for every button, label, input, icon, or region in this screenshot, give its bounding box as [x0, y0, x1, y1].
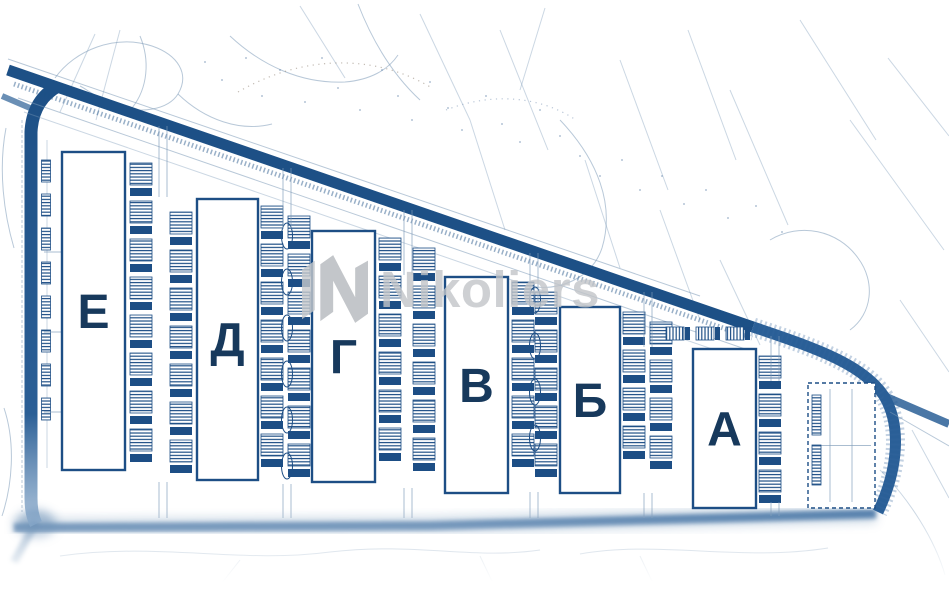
- building-e: Е: [62, 152, 125, 470]
- building-label-b: Б: [573, 375, 608, 428]
- building-g: Г: [312, 231, 375, 482]
- site-plan: ЕДГВБА: [0, 0, 949, 600]
- building-v: В: [445, 277, 508, 493]
- building-a: А: [693, 349, 756, 508]
- building-label-g: Г: [330, 332, 357, 385]
- building-label-a: А: [707, 404, 742, 457]
- building-label-e: Е: [77, 286, 109, 339]
- left-road-stub: [2, 96, 30, 108]
- loading-docks-and-parking: [42, 126, 782, 518]
- building-label-d: Д: [210, 315, 244, 368]
- future-building: [808, 383, 875, 508]
- building-label-v: В: [459, 360, 494, 413]
- building-d: Д: [197, 199, 258, 480]
- building-b: Б: [560, 307, 620, 493]
